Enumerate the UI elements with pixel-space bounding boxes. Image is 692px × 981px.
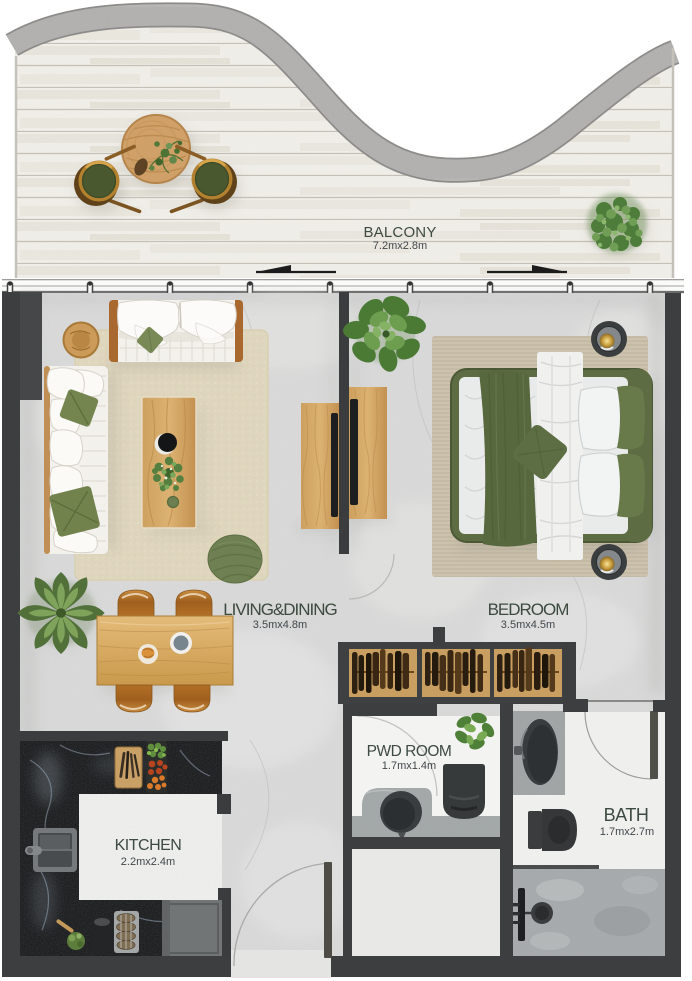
svg-text:3.5mx4.5m: 3.5mx4.5m [501, 619, 555, 631]
svg-text:PWD ROOM: PWD ROOM [367, 743, 452, 760]
svg-text:7.2mx2.8m: 7.2mx2.8m [373, 240, 427, 252]
svg-text:KITCHEN: KITCHEN [115, 837, 182, 854]
svg-text:BALCONY: BALCONY [363, 224, 436, 241]
svg-text:BATH: BATH [604, 805, 649, 825]
svg-text:1.7mx1.4m: 1.7mx1.4m [382, 760, 436, 772]
svg-text:1.7mx2.7m: 1.7mx2.7m [600, 826, 654, 838]
svg-text:3.5mx4.8m: 3.5mx4.8m [253, 619, 307, 631]
svg-text:LIVING&DINING: LIVING&DINING [223, 600, 337, 619]
svg-text:BEDROOM: BEDROOM [488, 600, 569, 619]
svg-text:2.2mx2.4m: 2.2mx2.4m [121, 856, 175, 868]
